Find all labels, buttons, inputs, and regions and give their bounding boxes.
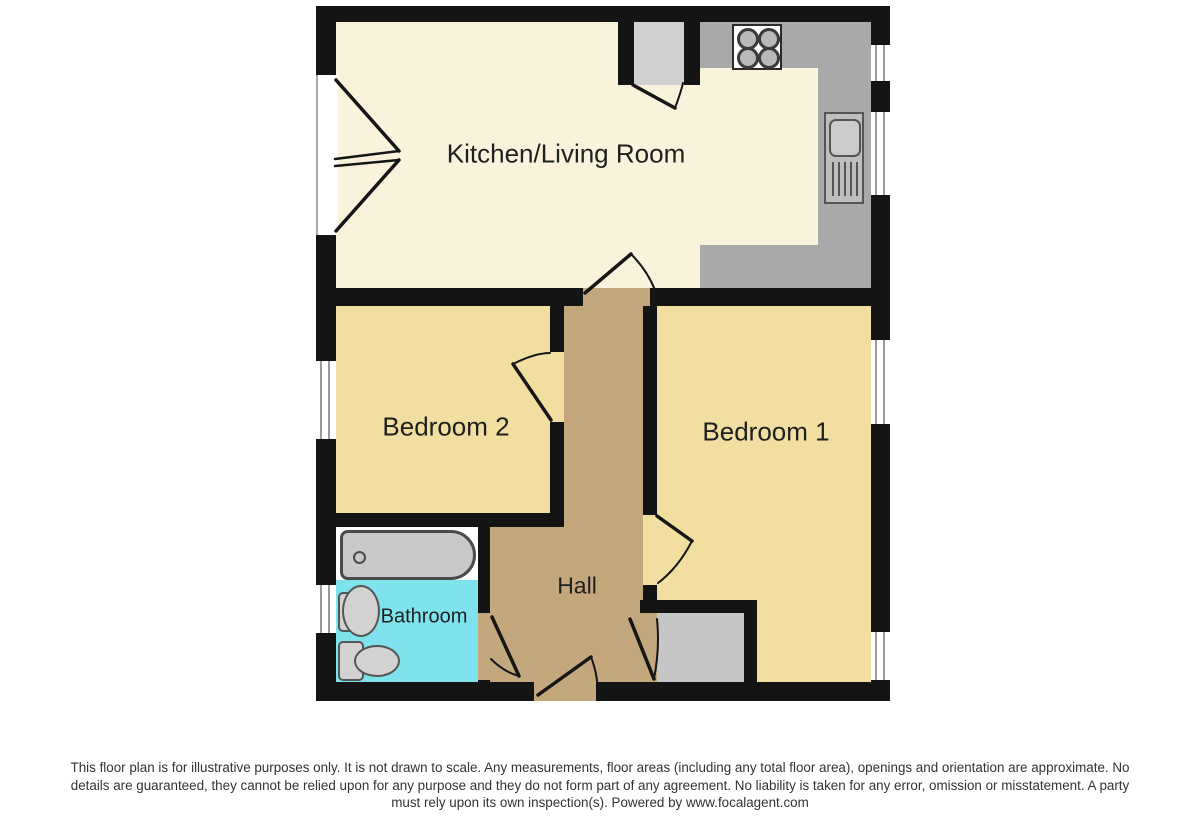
bedroom1-door-leaf	[657, 516, 692, 541]
bedroom2-door-arc	[513, 353, 550, 364]
bathroom-door-leaf	[492, 617, 519, 676]
french-door-leaf	[336, 80, 399, 151]
cupboard-door-arc	[675, 83, 683, 108]
disclaimer-line: This floor plan is for illustrative purp…	[0, 759, 1200, 777]
bedroom2-door-leaf	[513, 364, 551, 420]
label-hall: Hall	[557, 573, 597, 600]
cupboard-door-leaf	[633, 85, 675, 108]
label-bedroom2: Bedroom 2	[382, 412, 509, 443]
kitchen-door-arc	[631, 254, 655, 290]
bedroom1-door-arc	[658, 541, 692, 583]
closet-door-leaf	[630, 619, 654, 679]
disclaimer-line: must rely upon its own inspection(s). Po…	[0, 794, 1200, 812]
french-door-leaf	[336, 160, 399, 231]
kitchen-door-leaf	[585, 254, 631, 293]
disclaimer-line: details are guaranteed, they cannot be r…	[0, 777, 1200, 795]
floor-plan-page: Kitchen/Living Room Bedroom 2 Bedroom 1 …	[0, 0, 1200, 816]
label-bedroom1: Bedroom 1	[702, 417, 829, 448]
french-door-arc	[335, 160, 399, 166]
front-door-leaf	[538, 657, 591, 695]
closet-door-arc	[654, 619, 658, 679]
label-bathroom: Bathroom	[381, 606, 468, 629]
french-door-arc	[335, 151, 399, 159]
disclaimer: This floor plan is for illustrative purp…	[0, 759, 1200, 812]
front-door-arc	[591, 657, 597, 695]
label-kitchen-living: Kitchen/Living Room	[447, 139, 685, 170]
door-symbols	[0, 0, 1200, 816]
